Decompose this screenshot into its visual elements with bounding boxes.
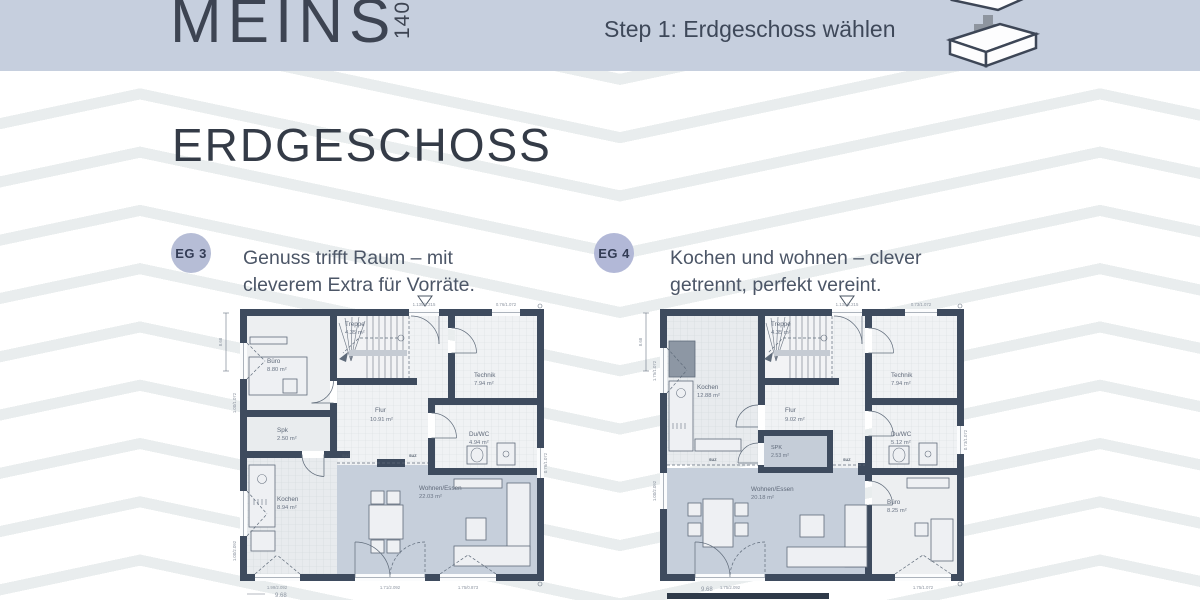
eg4-badge[interactable]: EG 4: [594, 233, 634, 273]
floorplan-option-eg3[interactable]: EG 3 Genuss trifft Raum – mit cleverem E…: [150, 220, 596, 600]
dim-left-window: 1.00/1.072: [232, 392, 237, 413]
suz-mark: SUZ: [709, 458, 717, 462]
room-area: 4.35 m²: [345, 330, 365, 336]
dim-left-window2: 1.00/2.092: [232, 540, 237, 561]
dim-total-width: 9.68: [701, 587, 713, 593]
dim-top-door: 1.135/2.215: [413, 302, 436, 307]
dim-top-door: 1.135/2.215: [836, 302, 859, 307]
dim-top-window: 0.73/1.072: [911, 302, 932, 307]
page-title: ERDGESCHOSS: [172, 118, 552, 172]
step-label: Step 1: Erdgeschoss wählen: [604, 16, 896, 43]
page: MEINS 140 Step 1: Erdgeschoss wählen ERD…: [0, 0, 1200, 600]
eg3-badge[interactable]: EG 3: [171, 233, 211, 273]
eg4-floorplan[interactable]: Kochen 12.88 m² Treppe 4.35 m² Technik 7…: [635, 293, 969, 600]
dim-bottom-3: 1.75/0.873: [458, 585, 479, 590]
eg3-description: Genuss trifft Raum – mit cleverem Extra …: [243, 245, 475, 299]
dim-bottom-2: 1.71/2.092: [380, 585, 401, 590]
brand-model-number: 140: [391, 1, 415, 39]
brand-logo: MEINS: [170, 0, 396, 57]
suz-mark: SUZ: [409, 454, 417, 458]
room-area: 20.18 m²: [751, 495, 774, 501]
room-area: 10.91 m²: [370, 417, 393, 423]
dim-bottom-2: 1.75/1.072: [913, 585, 934, 590]
room-area: 4.35 m²: [771, 330, 791, 336]
room-area: 22.03 m²: [419, 494, 442, 500]
eg3-floorplan[interactable]: Büro 8.80 m² Treppe 4.35 m² Technik 7.94…: [215, 293, 549, 600]
room-name: Treppe: [771, 321, 791, 328]
eg4-description-line1: Kochen und wohnen – clever: [670, 247, 922, 269]
room-area: 2.50 m²: [277, 436, 297, 442]
room-name: Technik: [474, 372, 496, 379]
dim-right-window: 0.73/1.072: [963, 429, 968, 450]
chevron-stripe: [0, 71, 140, 600]
room-area: 8.80 m²: [267, 367, 287, 373]
dim-bottom-1: 1.99/2.092: [267, 585, 288, 590]
room-name: Wohnen/Essen: [419, 485, 462, 492]
room-name: Spk: [277, 427, 289, 434]
room-area: 7.94 m²: [891, 381, 911, 387]
dim-left-height: 8.68: [638, 337, 643, 346]
room-name: Du/WC: [469, 431, 490, 438]
eg3-description-line1: Genuss trifft Raum – mit: [243, 247, 453, 269]
app-header: MEINS 140 Step 1: Erdgeschoss wählen: [0, 0, 1200, 71]
dim-bottom-1: 1.75/2.092: [720, 585, 741, 590]
room-area: 7.94 m²: [474, 381, 494, 387]
dim-left-height: 8.68: [218, 337, 223, 346]
room-name: Büro: [267, 358, 281, 365]
room-name: Flur: [785, 407, 796, 414]
dim-left-window: 1.75/1.072: [652, 360, 657, 381]
dim-top-window: 0.76/1.072: [496, 302, 517, 307]
room-area: 8.25 m²: [887, 508, 907, 514]
eg4-description: Kochen und wohnen – clever getrennt, per…: [670, 245, 922, 299]
floorplan-option-eg4[interactable]: EG 4 Kochen und wohnen – clever getrennt…: [573, 220, 1019, 600]
suz-mark: SUZ: [342, 454, 350, 458]
room-name: Technik: [891, 372, 913, 379]
room-area: 5.12 m²: [891, 440, 911, 446]
chevron-stripe: [1100, 71, 1200, 600]
room-area: 8.94 m²: [277, 505, 297, 511]
room-name: Du/WC: [891, 431, 912, 438]
room-area: 9.02 m²: [785, 417, 805, 423]
dim-right-window: 0.76/1.072: [543, 452, 548, 473]
suz-mark: SUZ: [843, 458, 851, 462]
add-floor-icon: [938, 0, 1042, 71]
room-name: Treppe: [345, 321, 365, 328]
room-name: Kochen: [697, 384, 719, 391]
room-name: Kochen: [277, 496, 299, 503]
room-name: Flur: [375, 407, 386, 414]
dim-total-width: 9.68: [275, 593, 287, 599]
room-name: SPK: [771, 445, 782, 451]
room-area: 12.88 m²: [697, 393, 720, 399]
room-name: Büro: [887, 499, 901, 506]
dim-left-window2: 1.00/2.092: [652, 480, 657, 501]
room-area: 2.53 m²: [771, 453, 789, 459]
room-name: Wohnen/Essen: [751, 486, 794, 493]
room-area: 4.94 m²: [469, 440, 489, 446]
